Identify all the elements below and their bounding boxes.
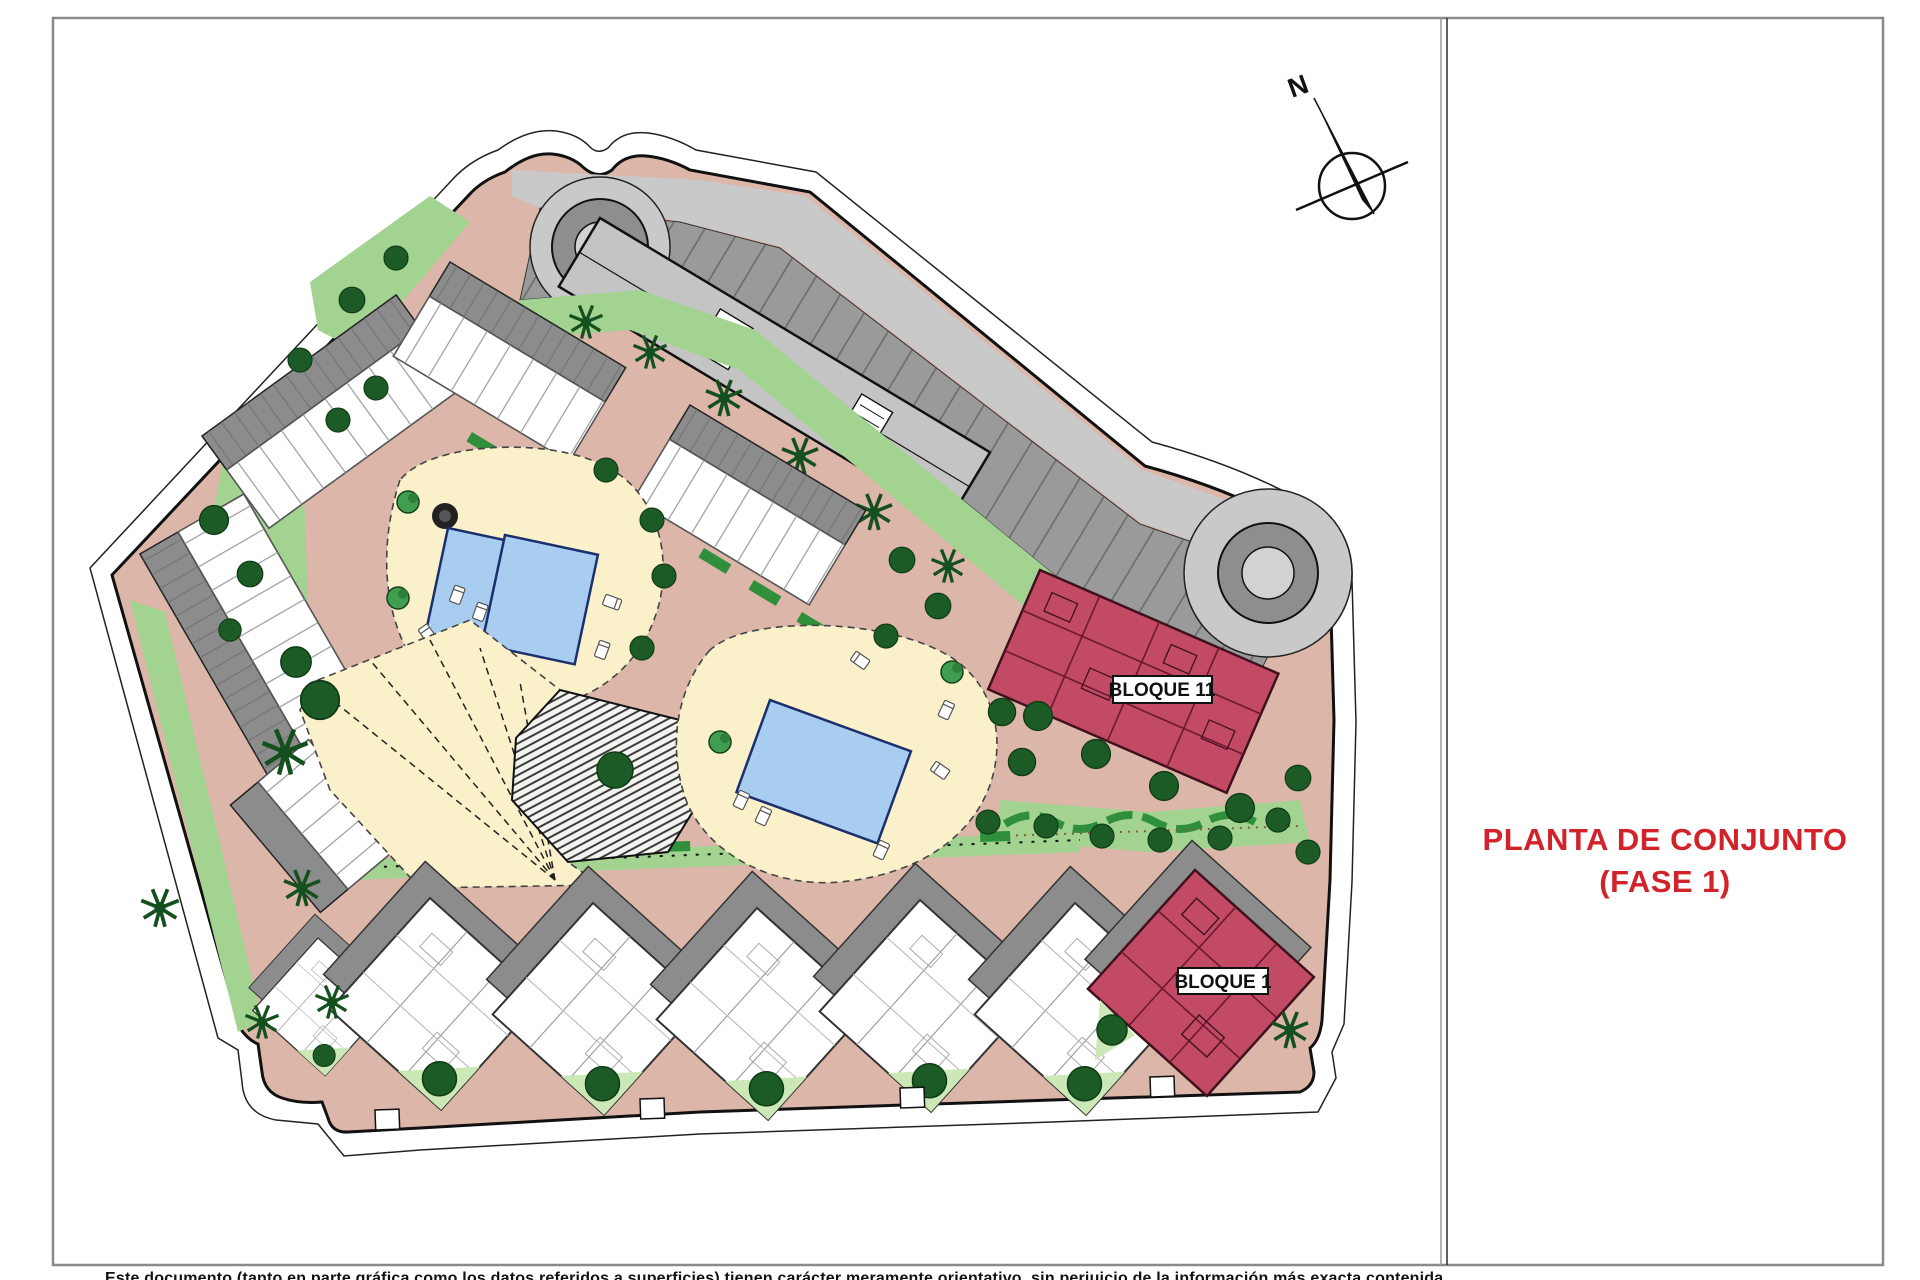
drawing-sheet: BLOQUE 11 BLOQUE 1 N PLANTA DE CONJUNTO … [0, 0, 1920, 1280]
north-arrow-icon: N [1284, 69, 1408, 219]
svg-text:N: N [1284, 69, 1313, 104]
site-plan: BLOQUE 11 BLOQUE 1 [90, 131, 1356, 1156]
svg-text:BLOQUE 11: BLOQUE 11 [1109, 680, 1216, 701]
roundabout-right [1184, 489, 1352, 657]
title-block: PLANTA DE CONJUNTO (FASE 1) [1483, 822, 1848, 899]
svg-text:BLOQUE 1: BLOQUE 1 [1174, 972, 1272, 993]
page-title-line1: PLANTA DE CONJUNTO [1483, 822, 1848, 857]
bloque-11-label: BLOQUE 11 [1109, 676, 1216, 703]
page-title-line2: (FASE 1) [1599, 864, 1730, 899]
bloque-1-label: BLOQUE 1 [1174, 968, 1272, 994]
disclaimer-text: Este documento (tanto en parte gráfica c… [105, 1270, 1443, 1280]
